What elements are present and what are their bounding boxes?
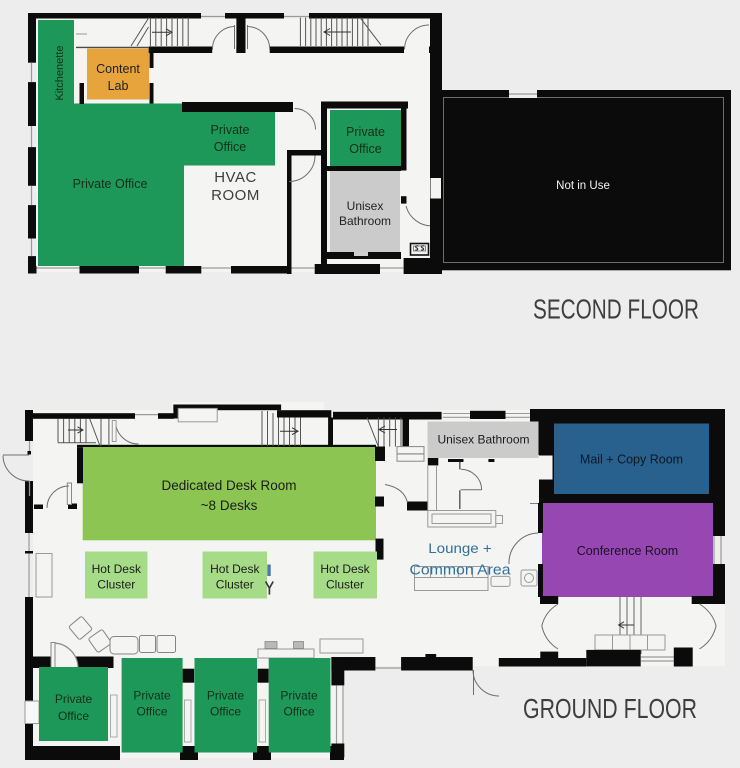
svg-text:Cluster: Cluster	[216, 578, 254, 592]
svg-text:Conference Room: Conference Room	[577, 544, 678, 558]
svg-text:Office: Office	[283, 705, 314, 719]
svg-text:Office: Office	[214, 140, 246, 154]
svg-text:Office: Office	[58, 709, 89, 723]
svg-text:Office: Office	[136, 705, 167, 719]
svg-text:Not in Use: Not in Use	[556, 180, 610, 192]
svg-text:ROOM: ROOM	[211, 187, 260, 204]
svg-text:Private: Private	[346, 125, 385, 139]
svg-text:Private: Private	[133, 689, 171, 703]
svg-text:SECOND FLOOR: SECOND FLOOR	[533, 294, 699, 325]
svg-text:Private: Private	[55, 692, 93, 706]
svg-text:Cluster: Cluster	[326, 578, 364, 592]
svg-text:Private: Private	[211, 123, 250, 137]
svg-text:Private: Private	[207, 689, 245, 703]
svg-text:Lab: Lab	[108, 79, 129, 93]
svg-text:Office: Office	[349, 142, 381, 156]
svg-text:Unisex: Unisex	[347, 199, 384, 213]
svg-text:Content: Content	[96, 62, 140, 76]
svg-text:~8 Desks: ~8 Desks	[201, 498, 258, 513]
svg-text:Unisex Bathroom: Unisex Bathroom	[437, 433, 529, 447]
svg-text:Dedicated Desk Room: Dedicated Desk Room	[161, 478, 296, 493]
svg-text:Kitchenette: Kitchenette	[54, 45, 66, 100]
svg-text:Hot Desk: Hot Desk	[210, 562, 260, 576]
svg-text:Common Area: Common Area	[410, 563, 512, 579]
svg-text:Private: Private	[280, 689, 318, 703]
svg-text:Cluster: Cluster	[97, 578, 135, 592]
svg-text:HVAC: HVAC	[214, 169, 257, 186]
svg-text:Lounge +: Lounge +	[428, 540, 492, 556]
svg-text:Private Office: Private Office	[73, 177, 148, 191]
svg-text:Hot Desk: Hot Desk	[92, 562, 142, 576]
svg-text:GROUND FLOOR: GROUND FLOOR	[523, 693, 697, 724]
svg-text:Mail + Copy Room: Mail + Copy Room	[580, 453, 683, 467]
svg-text:Office: Office	[210, 705, 241, 719]
svg-text:Hot Desk: Hot Desk	[320, 562, 370, 576]
svg-text:Bathroom: Bathroom	[339, 214, 391, 228]
